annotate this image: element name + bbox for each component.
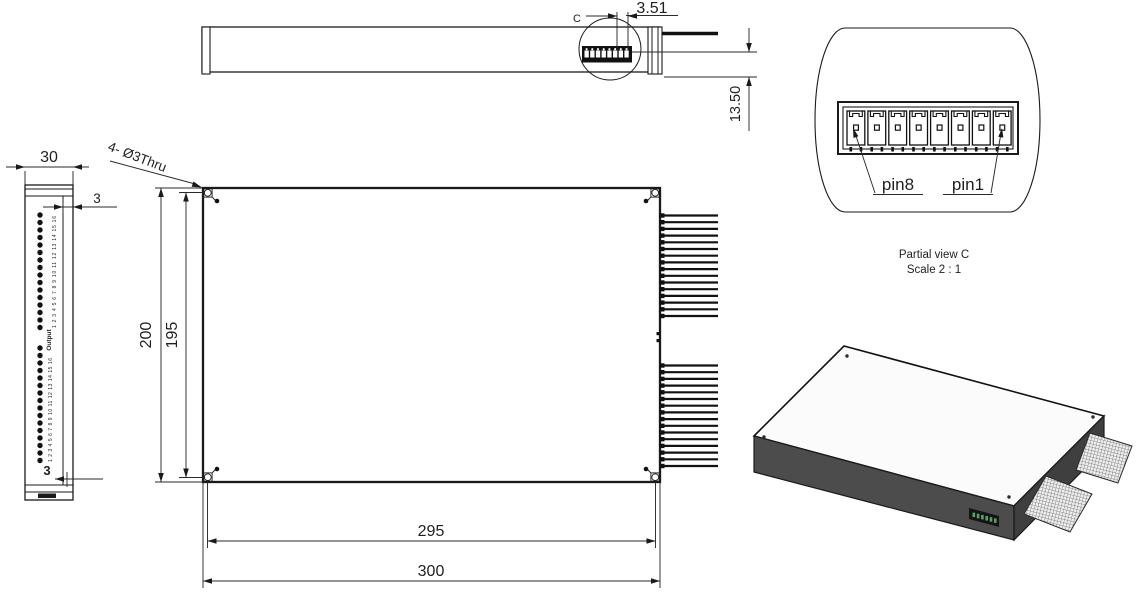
- port-dot: [37, 390, 42, 395]
- iso-connector-pin: [994, 518, 997, 523]
- partial-view-caption: Partial view C: [899, 249, 969, 261]
- port-dot: [37, 405, 42, 410]
- port-dot: [37, 257, 42, 262]
- fiber-pad: [660, 294, 665, 298]
- port-dot: [37, 250, 42, 255]
- fiber-pad: [660, 227, 665, 231]
- fiber-pad: [660, 280, 665, 284]
- fiber-bundle-bottom: [660, 363, 719, 468]
- front-view: 4- Ø3Thru 200 195 295: [106, 139, 718, 588]
- port-dot: [37, 325, 42, 330]
- tv-slot-notch: [586, 48, 588, 50]
- port-dot: [37, 302, 42, 307]
- port-dot: [37, 242, 42, 247]
- drawing-canvas: C 3.51 13.50 1 2 3 4 5: [0, 0, 1141, 600]
- tv-slot-notch: [597, 48, 599, 50]
- pv-cell-pin: [875, 125, 880, 130]
- side-view: 1 2 3 4 5 6 7 8 9 10 11 12 13 14 15 16 1…: [6, 149, 117, 500]
- port-dot: [37, 235, 42, 240]
- fiber-pad: [660, 314, 665, 318]
- pv-cell-tick: [922, 147, 925, 152]
- fiber-pad: [660, 444, 665, 448]
- port-dot: [37, 435, 42, 440]
- port-dot: [37, 383, 42, 388]
- tv-connector-slot: [624, 51, 628, 58]
- pv-cell-tick: [985, 147, 988, 152]
- fiber-pad: [660, 457, 665, 461]
- port-labels-top: 1 2 3 4 5 6 7 8 9 10 11 12 13 14 15 16: [52, 216, 58, 328]
- port-dot: [37, 280, 42, 285]
- port-dot: [37, 345, 42, 350]
- tv-slot-notch: [609, 48, 611, 50]
- partial-view-c: pin8 pin1 Partial view C Scale 2 : 1: [815, 28, 1040, 276]
- tv-connector-slot: [590, 51, 594, 58]
- pv-cell-tick: [933, 147, 936, 152]
- tv-connector-slot: [613, 51, 617, 58]
- pin8-label: pin8: [882, 175, 914, 194]
- pin1-label: pin1: [952, 175, 984, 194]
- fiber-pad: [660, 397, 665, 401]
- fiber-pad: [660, 260, 665, 264]
- fiber-pad: [660, 287, 665, 291]
- port-dot: [37, 295, 42, 300]
- dim-text-195: 195: [164, 322, 181, 349]
- detail-marker-label: C: [573, 13, 581, 25]
- fiber-pad: [660, 450, 665, 454]
- top-view: C 3.51 13.50: [202, 0, 757, 131]
- iso-connector-pin: [981, 515, 984, 520]
- pv-cell-pin: [958, 125, 963, 130]
- port-dot: [37, 458, 42, 463]
- pv-cell-tick: [850, 147, 853, 152]
- port-dot: [37, 443, 42, 448]
- tv-connector-slot: [596, 51, 600, 58]
- fiber-pad: [660, 267, 665, 271]
- isometric-view: [754, 346, 1132, 540]
- dim-text-3-51: 3.51: [636, 0, 667, 17]
- port-dot: [37, 310, 42, 315]
- pv-cell-tick: [881, 147, 884, 152]
- port-dot: [37, 220, 42, 225]
- pv-cell-pin: [854, 125, 859, 130]
- fiber-pad: [660, 424, 665, 428]
- partial-view-scale: Scale 2 : 1: [907, 264, 961, 276]
- fiber-pad: [660, 417, 665, 421]
- port-dot: [37, 368, 42, 373]
- port-dot: [37, 428, 42, 433]
- cad-drawing: C 3.51 13.50 1 2 3 4 5: [0, 0, 1141, 600]
- fiber-pad: [660, 437, 665, 441]
- dim-text-13-50: 13.50: [728, 86, 744, 122]
- fiber-pad: [660, 220, 665, 224]
- fiber-pad: [660, 307, 665, 311]
- fiber-pad: [660, 430, 665, 434]
- tv-slot-notch: [620, 48, 622, 50]
- dim-text-300: 300: [418, 563, 445, 580]
- fiber-pad: [660, 213, 665, 217]
- tv-slot-notch: [603, 48, 605, 50]
- dim-text-3-bottom: 3: [43, 463, 50, 478]
- pv-cell-tick: [975, 147, 978, 152]
- hole-callout: 4- Ø3Thru: [106, 139, 202, 188]
- port-dot: [37, 450, 42, 455]
- port-dot: [37, 212, 42, 217]
- front-view-body: [203, 188, 660, 482]
- dim-text-30: 30: [40, 149, 58, 166]
- dim-text-295: 295: [418, 523, 445, 540]
- hole-callout-text: 4- Ø3Thru: [106, 139, 169, 175]
- dim-30: 30: [6, 149, 89, 185]
- fiber-pad: [660, 377, 665, 381]
- fiber-pad: [660, 464, 665, 468]
- tv-connector-slot: [607, 51, 611, 58]
- pv-cell-pin: [937, 125, 942, 130]
- pv-cell-pin: [916, 125, 921, 130]
- port-dot: [37, 227, 42, 232]
- pv-cell-tick: [964, 147, 967, 152]
- dim-295: 295: [208, 482, 656, 548]
- tv-slot-notch: [614, 48, 616, 50]
- port-dot: [37, 272, 42, 277]
- pv-cell-tick: [891, 147, 894, 152]
- pv-cell-pin: [895, 125, 900, 130]
- fiber-pad: [660, 363, 665, 367]
- pv-cell-tick: [870, 147, 873, 152]
- pv-cell-tick: [1006, 147, 1009, 152]
- fiber-pad: [660, 300, 665, 304]
- dim-text-3-top: 3: [93, 191, 101, 206]
- iso-connector-pin: [977, 514, 980, 519]
- fiber-pad: [660, 383, 665, 387]
- fiber-pad: [660, 404, 665, 408]
- port-dot: [37, 420, 42, 425]
- fiber-pad: [660, 254, 665, 258]
- port-dot: [37, 375, 42, 380]
- pv-cell-tick: [943, 147, 946, 152]
- pv-cell-tick: [954, 147, 957, 152]
- top-view-right-cap: [648, 27, 662, 74]
- tv-connector-slot: [619, 51, 623, 58]
- port-group-label: Output: [46, 329, 53, 351]
- dim-text-200: 200: [138, 322, 155, 349]
- edge-speck: [657, 339, 660, 342]
- fiber-pad: [660, 247, 665, 251]
- port-dot: [37, 287, 42, 292]
- top-view-left-cap: [202, 27, 210, 74]
- pv-cell-tick: [912, 147, 915, 152]
- iso-connector-pin: [990, 517, 993, 522]
- port-dot: [37, 353, 42, 358]
- fiber-pad: [660, 390, 665, 394]
- port-dot: [37, 265, 42, 270]
- fiber-pad: [660, 410, 665, 414]
- tv-slot-notch: [591, 48, 593, 50]
- fiber-pad: [660, 370, 665, 374]
- port-labels-bottom: 1 2 3 4 5 6 7 8 9 10 11 12 13 14 15 16: [48, 358, 54, 462]
- fiber-pad: [660, 233, 665, 237]
- port-dot: [37, 360, 42, 365]
- port-dot: [37, 317, 42, 322]
- port-dot: [37, 398, 42, 403]
- fiber-pad: [660, 240, 665, 244]
- edge-speck: [657, 332, 660, 335]
- tv-connector-slot: [602, 51, 606, 58]
- iso-connector-pin: [973, 513, 976, 518]
- fiber-pad: [660, 274, 665, 278]
- port-dot: [37, 413, 42, 418]
- dim-195: 195: [164, 193, 205, 478]
- pv-cell-pin: [1000, 125, 1005, 130]
- fiber-bundle-top: [660, 213, 719, 318]
- side-bottom-plate: [38, 494, 56, 499]
- dim-13-50: 13.50: [664, 28, 757, 131]
- iso-connector-pin: [985, 516, 988, 521]
- tv-slot-notch: [626, 48, 628, 50]
- tv-connector-slot: [585, 51, 589, 58]
- pv-cell-pin: [979, 125, 984, 130]
- pv-cell-tick: [902, 147, 905, 152]
